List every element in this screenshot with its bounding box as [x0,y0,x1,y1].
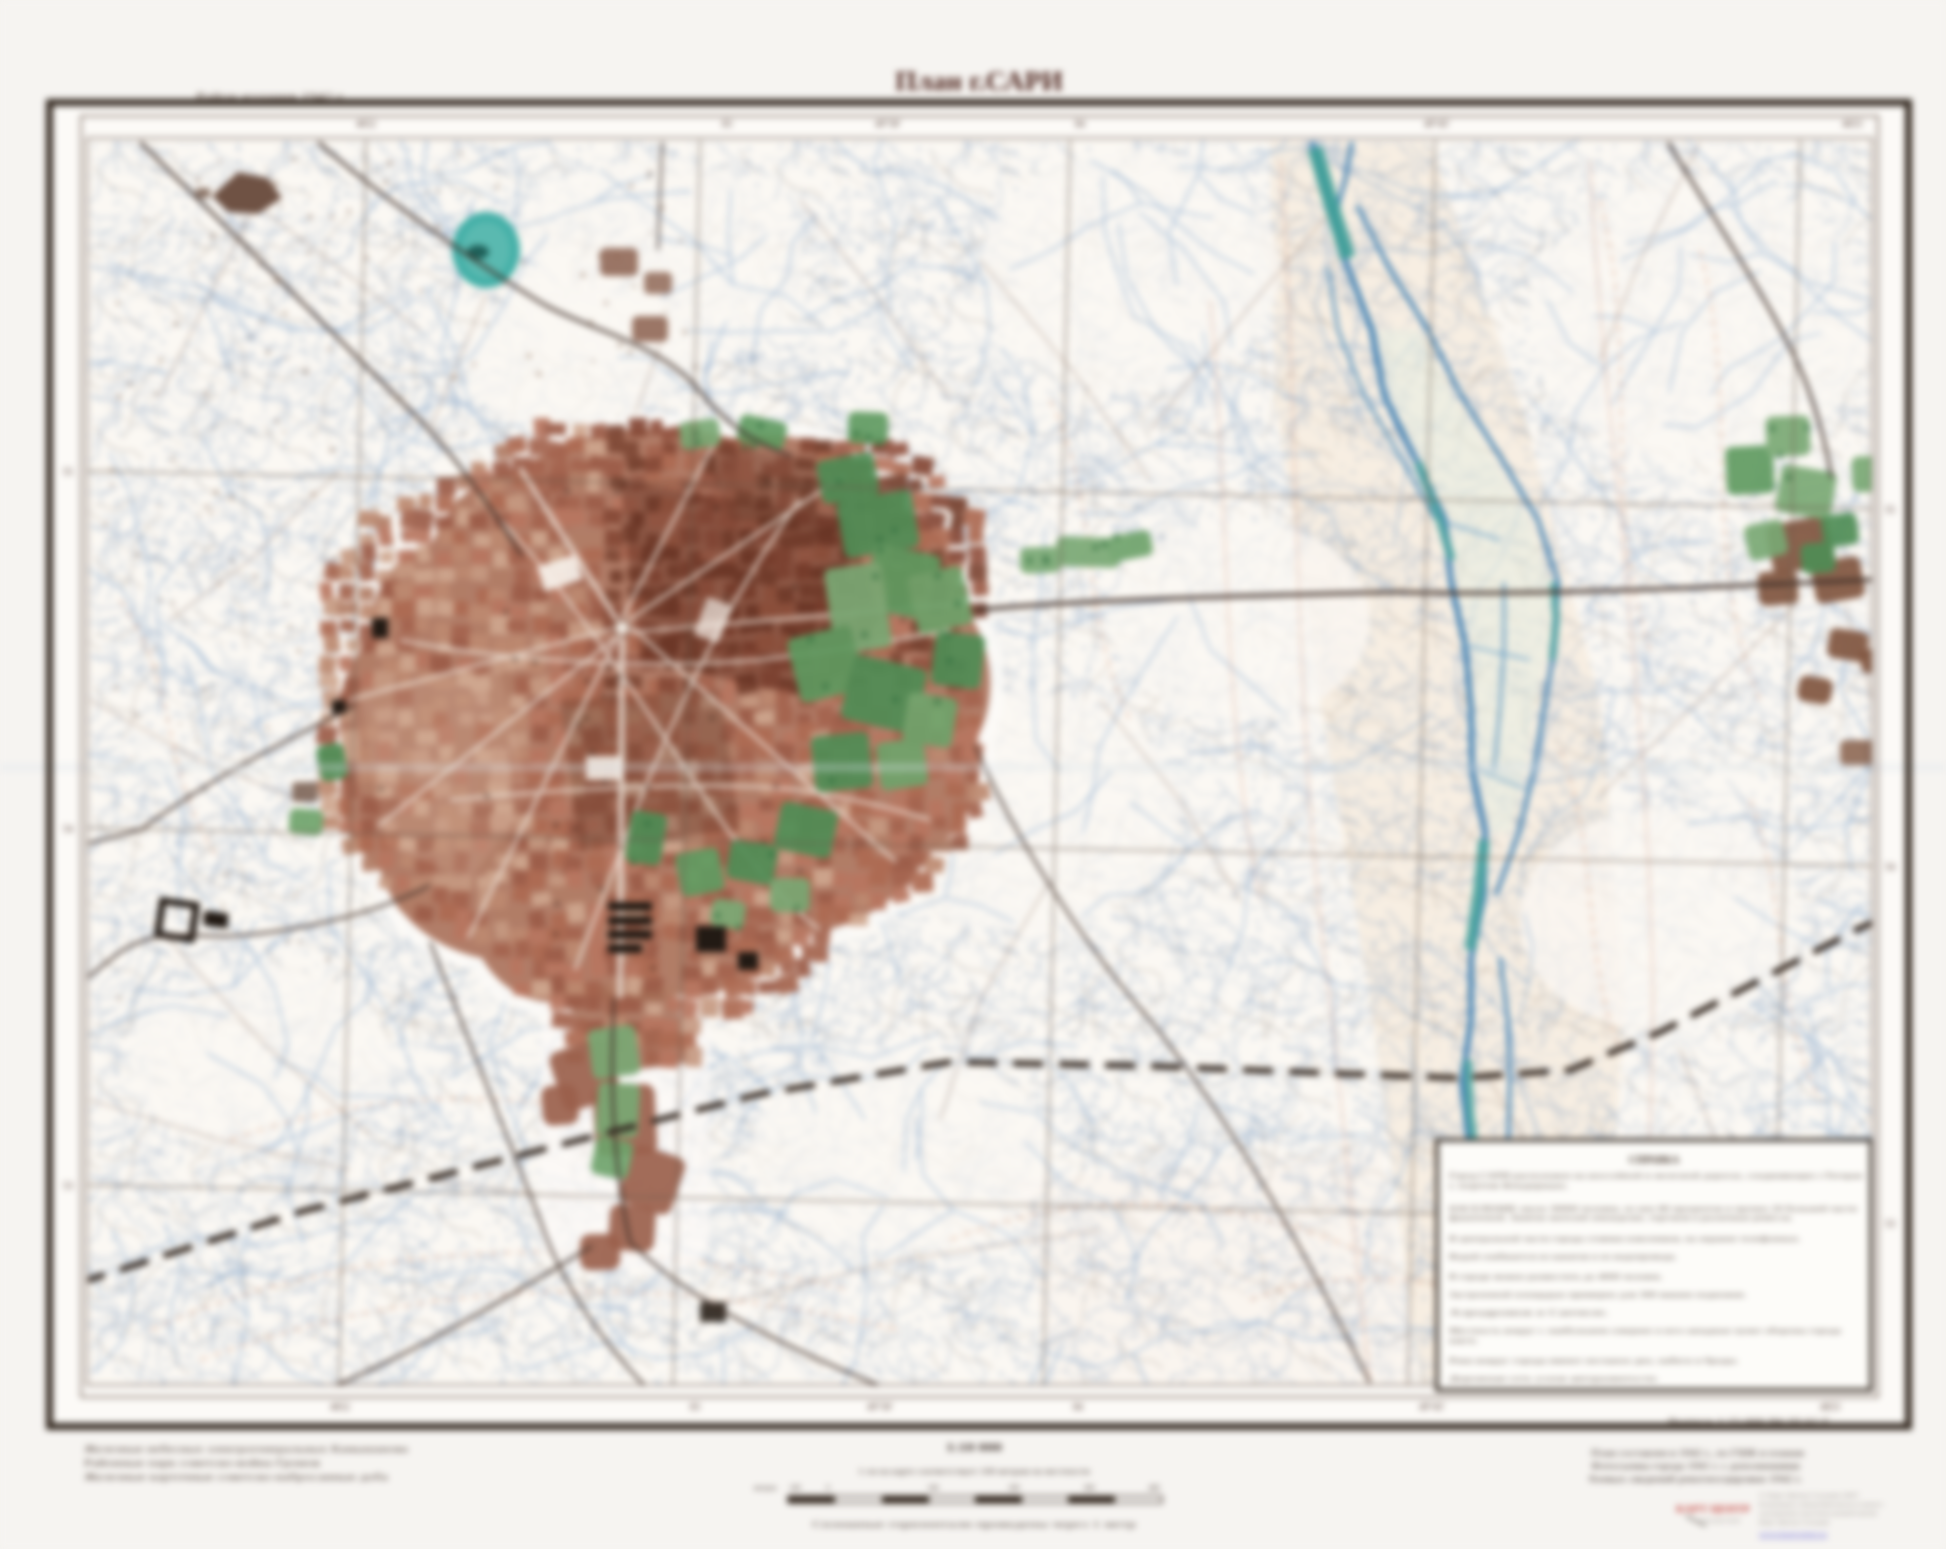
svg-text:НАСЕЛЕНИЕ около 30000 человек,: НАСЕЛЕНИЕ около 30000 человек, из них 80… [1449,1204,1857,1213]
svg-text:400: 400 [1148,1483,1160,1492]
svg-text:нет.: нет. [1449,1336,1479,1345]
svg-text:© Карт Центр Согедия 2007: © Карт Центр Согедия 2007 [1759,1492,1859,1499]
svg-text:49°30′: 49°30′ [875,119,901,130]
svg-text:СПРАВКА: СПРАВКА [1629,1155,1680,1166]
svg-text:4653: 4653 [1842,119,1862,130]
svg-text:54: 54 [63,824,73,835]
svg-text:55: 55 [1885,505,1895,516]
svg-text:1 см на карте соответствует 10: 1 см на карте соответствует 100 метрам н… [858,1466,1090,1476]
svg-text:54: 54 [1885,862,1895,873]
svg-text:4653: 4653 [1820,1402,1840,1413]
svg-text:метров: метров [754,1483,777,1492]
svg-text:49°45′: 49°45′ [1424,119,1450,130]
svg-text:В городе можно разместить до 4: В городе можно разместить до 4000 челове… [1449,1272,1663,1281]
svg-text:83: 83 [722,119,732,130]
svg-text:Город САРИ расположен на шоссе: Город САРИ расположен на шоссейной и жел… [1449,1171,1863,1180]
svg-text:4652: 4652 [356,119,376,130]
svg-text:53: 53 [1885,1219,1895,1230]
svg-text:49°30′: 49°30′ [867,1402,893,1413]
svg-text:в распоряжениях отдела близко: в распоряжениях отдела близко архивной г… [1759,1510,1878,1517]
svg-text:Железные карточные советско-на: Железные карточные советско-набросанные … [84,1472,389,1483]
svg-text:Водой снабжается из канатов и: Водой снабжается из канатов и из водопро… [1449,1252,1677,1261]
svg-text:0: 0 [826,1483,830,1492]
svg-text:В центральной части города сто: В центральной части города стоянки извоз… [1449,1234,1801,1243]
svg-text:200: 200 [1008,1483,1020,1492]
svg-text:Воспроизведено со фондов Минис: Воспроизведено со фондов Министерства по… [1759,1501,1883,1508]
svg-text:55: 55 [63,467,73,478]
svg-text:геодезия: геодезия [1700,1518,1741,1524]
svg-text:с портом Бендершах.: с портом Бендершах. [1449,1181,1569,1190]
svg-text:Районные парк советско-война Г: Районные парк советско-война Громов [84,1458,321,1469]
svg-text:Застроенной площадью примерно: Застроенной площадью примерно для 300 ма… [1449,1290,1747,1299]
svg-text:Реки вокруг города имеют песча: Реки вокруг города имеют песчаное дно, н… [1449,1356,1739,1365]
svg-text:План составлен в 1942 г., по Г: План составлен в 1942 г., по ГШК и плана… [1591,1449,1804,1459]
svg-text:Фотосъемка города 1941 г. с до: Фотосъемка города 1941 г. с дополнениями [1591,1462,1800,1472]
svg-text:49°45′: 49°45′ [1419,1402,1445,1413]
svg-text:www.kartcenter.ru: www.kartcenter.ru [1759,1532,1827,1538]
svg-text:Район издания 1942 г.: Район издания 1942 г. [196,92,346,103]
svg-text:План г.САРИ: План г.САРИ [895,66,1063,96]
svg-text:Дорожная сеть узлов авторазвит: Дорожная сеть узлов авторазвитости. [1449,1374,1659,1383]
svg-text:53: 53 [63,1181,73,1192]
svg-text:4652: 4652 [330,1402,350,1413]
svg-text:83: 83 [690,1402,700,1413]
svg-text:300: 300 [1083,1483,1095,1492]
svg-text:84: 84 [1073,1402,1083,1413]
svg-text:КАРТ ЦЕНТР: КАРТ ЦЕНТР [1676,1504,1751,1514]
svg-text:Местность вокруг г. наибольшем: Местность вокруг г. наибольшем севернее … [1449,1326,1842,1335]
svg-text:Карт Центр Согедия: Карт Центр Согедия [1759,1520,1830,1526]
svg-text:100: 100 [927,1483,939,1492]
svg-text:1:10 000: 1:10 000 [946,1440,1002,1454]
svg-text:фанатичной. Занятие жителей зе: фанатичной. Занятие жителей земледелие, … [1449,1213,1793,1222]
svg-text:Выпуск 1:25 000 В6 Ш 62 Г: Выпуск 1:25 000 В6 Ш 62 Г [1668,1416,1830,1426]
svg-text:Железные небесных электрогенер: Железные небесных электрогенеральных Кам… [84,1444,409,1455]
svg-text:боевых сведений рекогносцировк: боевых сведений рекогносцировки 1942 г. [1589,1474,1802,1485]
svg-text:Сплошные горизонтали проведены: Сплошные горизонтали проведены через 1 м… [812,1519,1136,1529]
svg-text:Аэродромов и Сапчеле.: Аэродромов и Сапчеле. [1449,1308,1609,1317]
svg-text:84: 84 [1075,119,1085,130]
svg-text:100: 100 [789,1483,801,1492]
